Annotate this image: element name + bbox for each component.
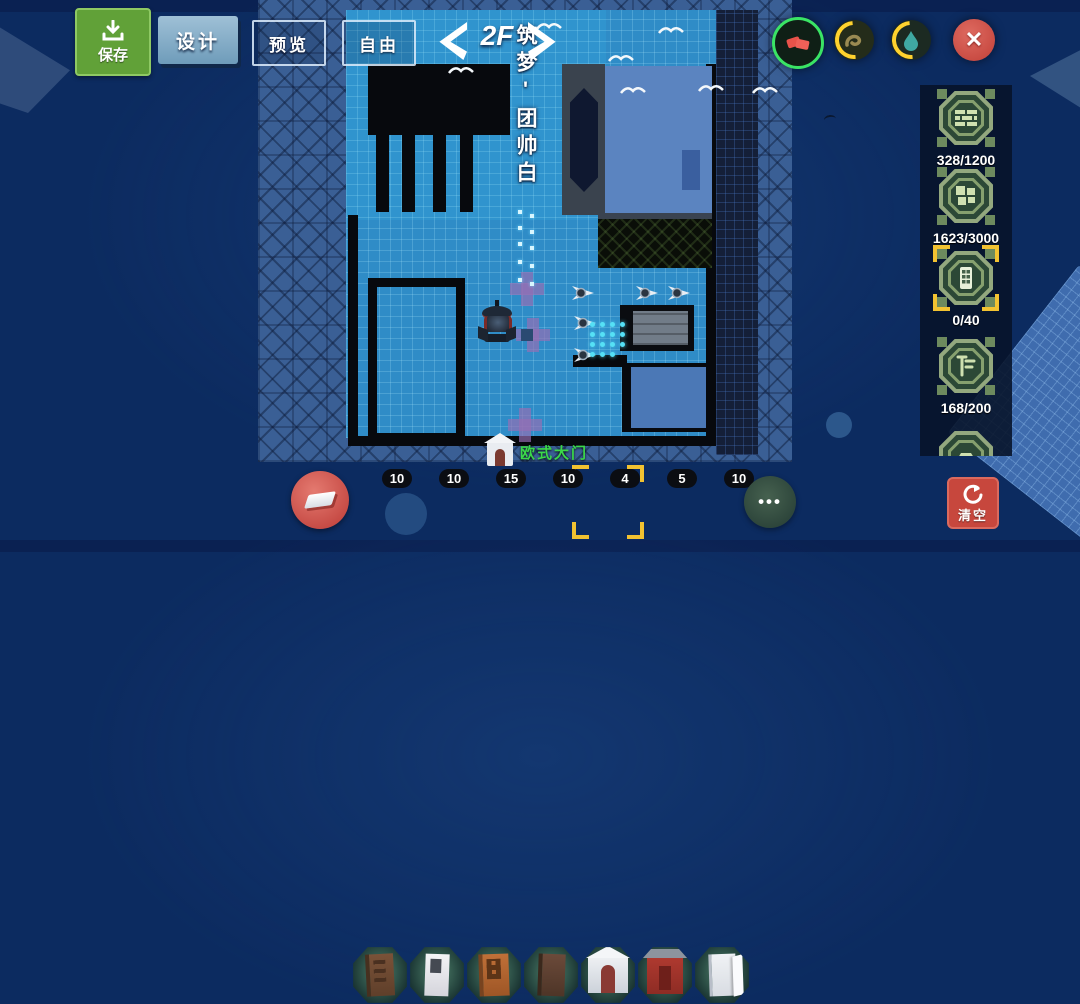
placed-gate-icon[interactable] — [487, 442, 513, 466]
lantern-fin — [478, 326, 488, 342]
blue-room-lower — [622, 363, 706, 432]
dark-brown-door-item — [537, 954, 565, 997]
brick-wall-icon — [939, 91, 993, 145]
resource-panel: 328/1200 1623/3000 0/40 — [920, 85, 1012, 456]
roof-icon — [939, 431, 993, 456]
wall-count: 328/1200 — [937, 152, 995, 168]
blueprint-map[interactable]: 筑梦'团帅白 欧式大门 — [258, 0, 792, 462]
water-glow — [826, 412, 852, 438]
red-gate-item — [647, 956, 683, 994]
ellipsis-icon: ••• — [758, 492, 782, 512]
selection-brackets — [939, 251, 993, 305]
hotbar-slot-7[interactable]: 10 — [694, 473, 750, 531]
free-label: 自由 — [359, 31, 399, 56]
floor-indicator: 2F — [468, 20, 526, 52]
wall-band-right — [716, 10, 758, 455]
wall-bar — [376, 135, 389, 212]
fish-icon — [570, 284, 598, 302]
design-label: 设计 — [176, 27, 220, 54]
seagull-icon — [448, 64, 474, 76]
gray-room — [620, 305, 694, 351]
close-button[interactable]: ✕ — [953, 19, 995, 61]
wall-material-tool[interactable] — [772, 17, 824, 69]
light-dots — [590, 322, 624, 354]
clear-label: 清空 — [958, 505, 988, 524]
seagull-icon — [752, 84, 778, 96]
count-badge: 10 — [382, 469, 412, 488]
furniture-count: 168/200 — [941, 400, 992, 416]
save-label: 保存 — [98, 44, 128, 65]
count-badge: 10 — [553, 469, 583, 488]
brick-icon — [785, 32, 811, 54]
preview-tab[interactable]: 预览 — [252, 20, 326, 66]
hotbar-slot-5-selected[interactable]: 4 — [580, 473, 636, 531]
gate-label: 欧式大门 — [520, 442, 588, 463]
design-tab[interactable]: 设计 — [158, 16, 238, 64]
hotbar-slot-6[interactable]: 5 — [637, 473, 693, 531]
hotbar-slot-3[interactable]: 15 — [466, 473, 522, 531]
wall-bar — [460, 135, 473, 212]
resource-floor[interactable]: 1623/3000 — [920, 169, 1012, 246]
bird-icon — [823, 114, 836, 125]
floor-tile-icon — [939, 169, 993, 223]
clear-button[interactable]: 清空 — [947, 477, 999, 529]
resource-wall[interactable]: 328/1200 — [920, 91, 1012, 168]
ocean-corner-patch — [1030, 40, 1080, 120]
sign-dots — [518, 210, 538, 300]
lantern-object[interactable] — [480, 300, 514, 352]
checkered-area — [598, 213, 712, 268]
brown-door-item — [365, 953, 395, 996]
cooldown-arc — [884, 13, 938, 67]
hotbar-slot-2[interactable]: 10 — [409, 473, 465, 531]
count-badge: 10 — [439, 469, 469, 488]
resource-door[interactable]: 0/40 — [920, 251, 1012, 328]
seagull-icon — [608, 52, 634, 64]
fish-icon — [634, 284, 662, 302]
count-badge: 15 — [496, 469, 526, 488]
hotbar-slot-4[interactable]: 10 — [523, 473, 579, 531]
free-mode-tab[interactable]: 自由 — [342, 20, 416, 66]
white-door-item — [424, 954, 449, 997]
reset-arrow-icon — [961, 483, 985, 505]
fish-icon — [666, 284, 694, 302]
seagull-icon — [536, 20, 562, 32]
count-badge: 5 — [667, 469, 697, 488]
eraser-icon — [304, 491, 336, 508]
blue-room-inner — [682, 150, 700, 190]
room-outline — [368, 278, 465, 442]
orange-door-item — [478, 953, 509, 996]
white-open-door-item — [708, 954, 736, 997]
water-tool[interactable] — [891, 20, 931, 60]
hotbar-slot-1[interactable]: 10 — [352, 473, 408, 531]
door-count: 0/40 — [952, 312, 979, 328]
eraser-button[interactable] — [291, 471, 349, 529]
pool-shape — [570, 88, 598, 192]
wall-bar — [402, 135, 415, 212]
seagull-icon — [620, 84, 646, 96]
european-gate-item — [588, 957, 628, 993]
plus-center-block — [521, 329, 533, 341]
iceberg-decoration — [0, 18, 70, 113]
more-items-button[interactable]: ••• — [744, 476, 796, 528]
count-badge: 4 — [610, 469, 640, 488]
seagull-icon — [698, 82, 724, 94]
wall-bar — [433, 135, 446, 212]
resource-roof-partial[interactable] — [920, 431, 1012, 456]
close-icon: ✕ — [965, 27, 983, 53]
furniture-icon — [939, 339, 993, 393]
path-material-tool[interactable] — [834, 20, 874, 60]
resource-furniture[interactable]: 168/200 — [920, 339, 1012, 416]
seagull-icon — [658, 24, 684, 36]
cooldown-arc — [827, 13, 881, 67]
preview-label: 预览 — [269, 31, 309, 56]
door-window-icon — [939, 251, 993, 305]
black-structure — [368, 64, 510, 135]
wall-segment-left — [348, 215, 358, 446]
floor-count: 1623/3000 — [933, 230, 999, 246]
download-icon — [101, 20, 125, 42]
save-button[interactable]: 保存 — [75, 8, 151, 76]
